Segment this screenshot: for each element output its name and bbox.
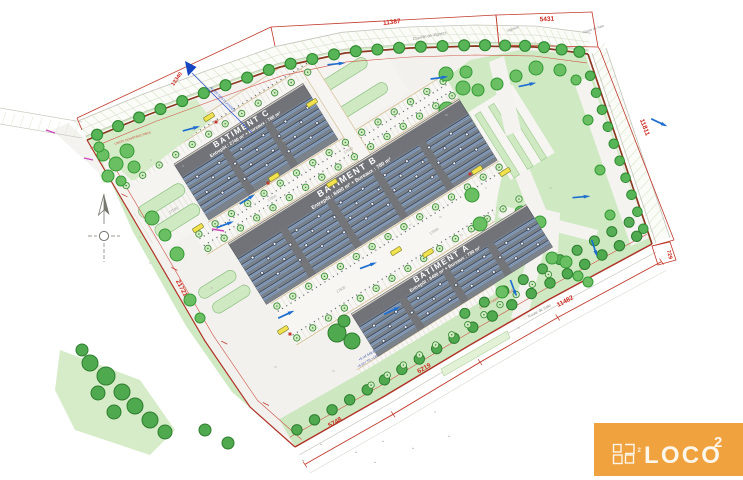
svg-text:5431: 5431 <box>540 16 555 24</box>
svg-text:LOCO: LOCO <box>644 442 722 469</box>
svg-text:2: 2 <box>714 434 722 451</box>
